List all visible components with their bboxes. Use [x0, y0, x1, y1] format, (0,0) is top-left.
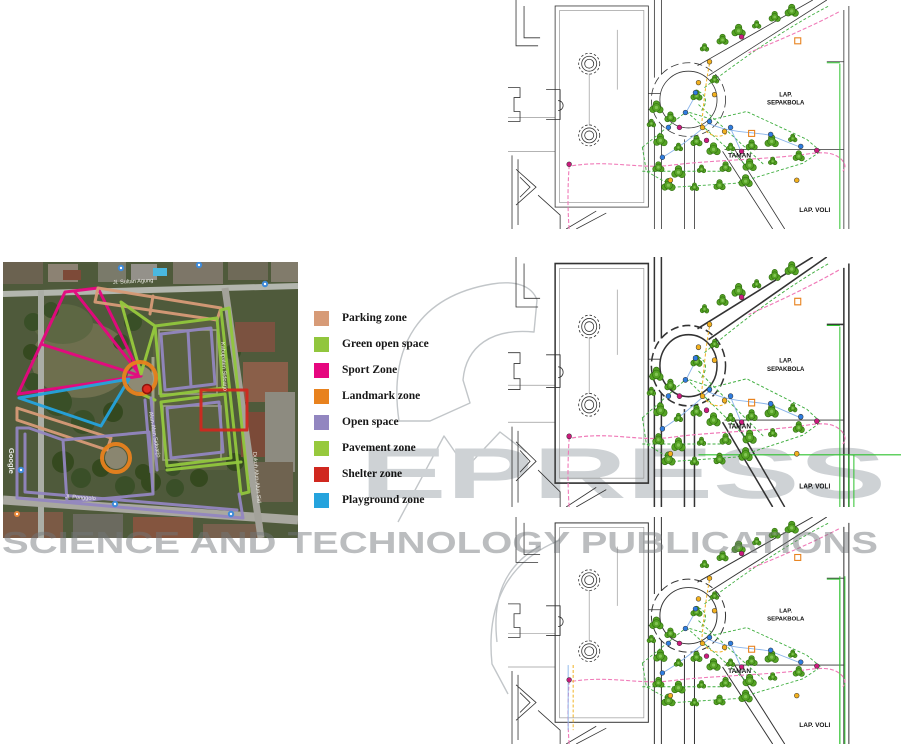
poi-pin-icon — [112, 501, 118, 507]
green-boundary-lines — [827, 576, 845, 744]
monument-icon — [579, 53, 600, 74]
map-marker-icon — [143, 385, 152, 394]
site-plan-3: LAP. SEPAKBOLA TAMAN LAP. VOLI — [508, 517, 901, 744]
plan-linework — [508, 0, 849, 229]
vertical-roads — [654, 257, 694, 507]
poi-pin-icon — [14, 511, 20, 517]
diagonal-road — [697, 0, 826, 76]
legend-item-playground: Playground zone — [314, 487, 484, 513]
plan-linework — [508, 257, 849, 507]
legend-label: Shelter zone — [342, 468, 402, 480]
paper-figure-page: EPRESS — [0, 0, 901, 744]
landmark-swatch — [314, 389, 329, 404]
satellite-zoning-map: Jl. Sultan Agung Kabupaten Sidoarjo Alun… — [3, 262, 298, 538]
site-plan-drawing: LAP. SEPAKBOLA TAMAN LAP. VOLI — [508, 257, 901, 507]
site-plan-1: LAP. SEPAKBOLA TAMAN LAP. VOLI — [508, 0, 901, 229]
google-logo: Google — [7, 448, 16, 474]
landmark-square-icons — [749, 38, 801, 137]
shelter-swatch — [314, 467, 329, 482]
feature-dots — [567, 551, 819, 698]
legend-item-green_open: Green open space — [314, 331, 484, 357]
plan-minor-lines — [508, 268, 644, 478]
parking-swatch — [314, 311, 329, 326]
label-field-top-line2: SEPAKBOLA — [767, 366, 805, 373]
label-field-top-line2: SEPAKBOLA — [767, 101, 805, 107]
plan-minor-lines — [508, 10, 644, 202]
plan-linework — [508, 517, 849, 744]
site-plan-drawing: LAP. SEPAKBOLA TAMAN LAP. VOLI — [508, 517, 901, 744]
legend-item-parking: Parking zone — [314, 305, 484, 331]
label-field-top-line1: LAP. — [779, 609, 792, 615]
label-field-bottom: LAP. VOLI — [799, 483, 830, 490]
playground-swatch — [314, 493, 329, 508]
legend-item-landmark: Landmark zone — [314, 383, 484, 409]
legend-item-shelter: Shelter zone — [314, 461, 484, 487]
landmark-square-icons — [749, 555, 801, 653]
poi-pin-icon — [118, 265, 124, 271]
poi-pin-icon — [196, 262, 202, 268]
legend-label: Landmark zone — [342, 390, 420, 402]
legend-label: Playground zone — [342, 494, 425, 506]
green_open-swatch — [314, 337, 329, 352]
legend-item-pavement: Pavement zone — [314, 435, 484, 461]
vertical-roads — [654, 517, 694, 744]
open_space-swatch — [314, 415, 329, 430]
vertical-roads — [654, 0, 694, 229]
zone-legend: Parking zoneGreen open spaceSport ZoneLa… — [314, 305, 484, 513]
gate-structures — [508, 517, 606, 744]
yellow-route-path — [573, 580, 726, 730]
green-boundary-lines — [827, 63, 840, 229]
landmark-square-icons — [749, 298, 801, 406]
poi-pin-icon — [18, 467, 24, 473]
legend-label: Sport Zone — [342, 364, 397, 376]
label-field-bottom: LAP. VOLI — [799, 722, 830, 729]
pavement-swatch — [314, 441, 329, 456]
label-field-bottom: LAP. VOLI — [799, 207, 830, 214]
monument-icon — [579, 641, 600, 662]
gate-structures — [508, 257, 606, 507]
right-boundary — [827, 264, 849, 507]
diagonal-road — [697, 257, 826, 340]
poi-pin-icon — [262, 281, 268, 287]
label-garden: TAMAN — [728, 152, 751, 159]
legend-label: Green open space — [342, 338, 429, 350]
diagonal-road — [697, 517, 826, 592]
legend-item-open_space: Open space — [314, 409, 484, 435]
legend-item-sport: Sport Zone — [314, 357, 484, 383]
monument-icon — [579, 315, 600, 338]
plan-minor-lines — [508, 527, 644, 717]
feature-dots — [567, 34, 819, 182]
label-garden: TAMAN — [728, 668, 751, 675]
label-field-top-line1: LAP. — [779, 357, 792, 364]
monument-icon — [579, 393, 600, 416]
label-field-top-line2: SEPAKBOLA — [767, 617, 805, 623]
legend-label: Parking zone — [342, 312, 407, 324]
poi-pin-icon — [228, 511, 234, 517]
feature-dots — [567, 295, 819, 457]
sport-swatch — [314, 363, 329, 378]
legend-label: Pavement zone — [342, 442, 416, 454]
monument-icon — [579, 570, 600, 591]
site-plan-2: LAP. SEPAKBOLA TAMAN LAP. VOLI — [508, 257, 901, 507]
right-boundary — [827, 6, 849, 229]
label-field-top-line1: LAP. — [779, 93, 792, 99]
site-plan-drawing: LAP. SEPAKBOLA TAMAN LAP. VOLI — [508, 0, 901, 229]
gate-structures — [508, 0, 606, 229]
legend-label: Open space — [342, 416, 399, 428]
monument-icon — [579, 125, 600, 146]
label-garden: TAMAN — [728, 424, 751, 431]
right-boundary — [827, 523, 849, 744]
